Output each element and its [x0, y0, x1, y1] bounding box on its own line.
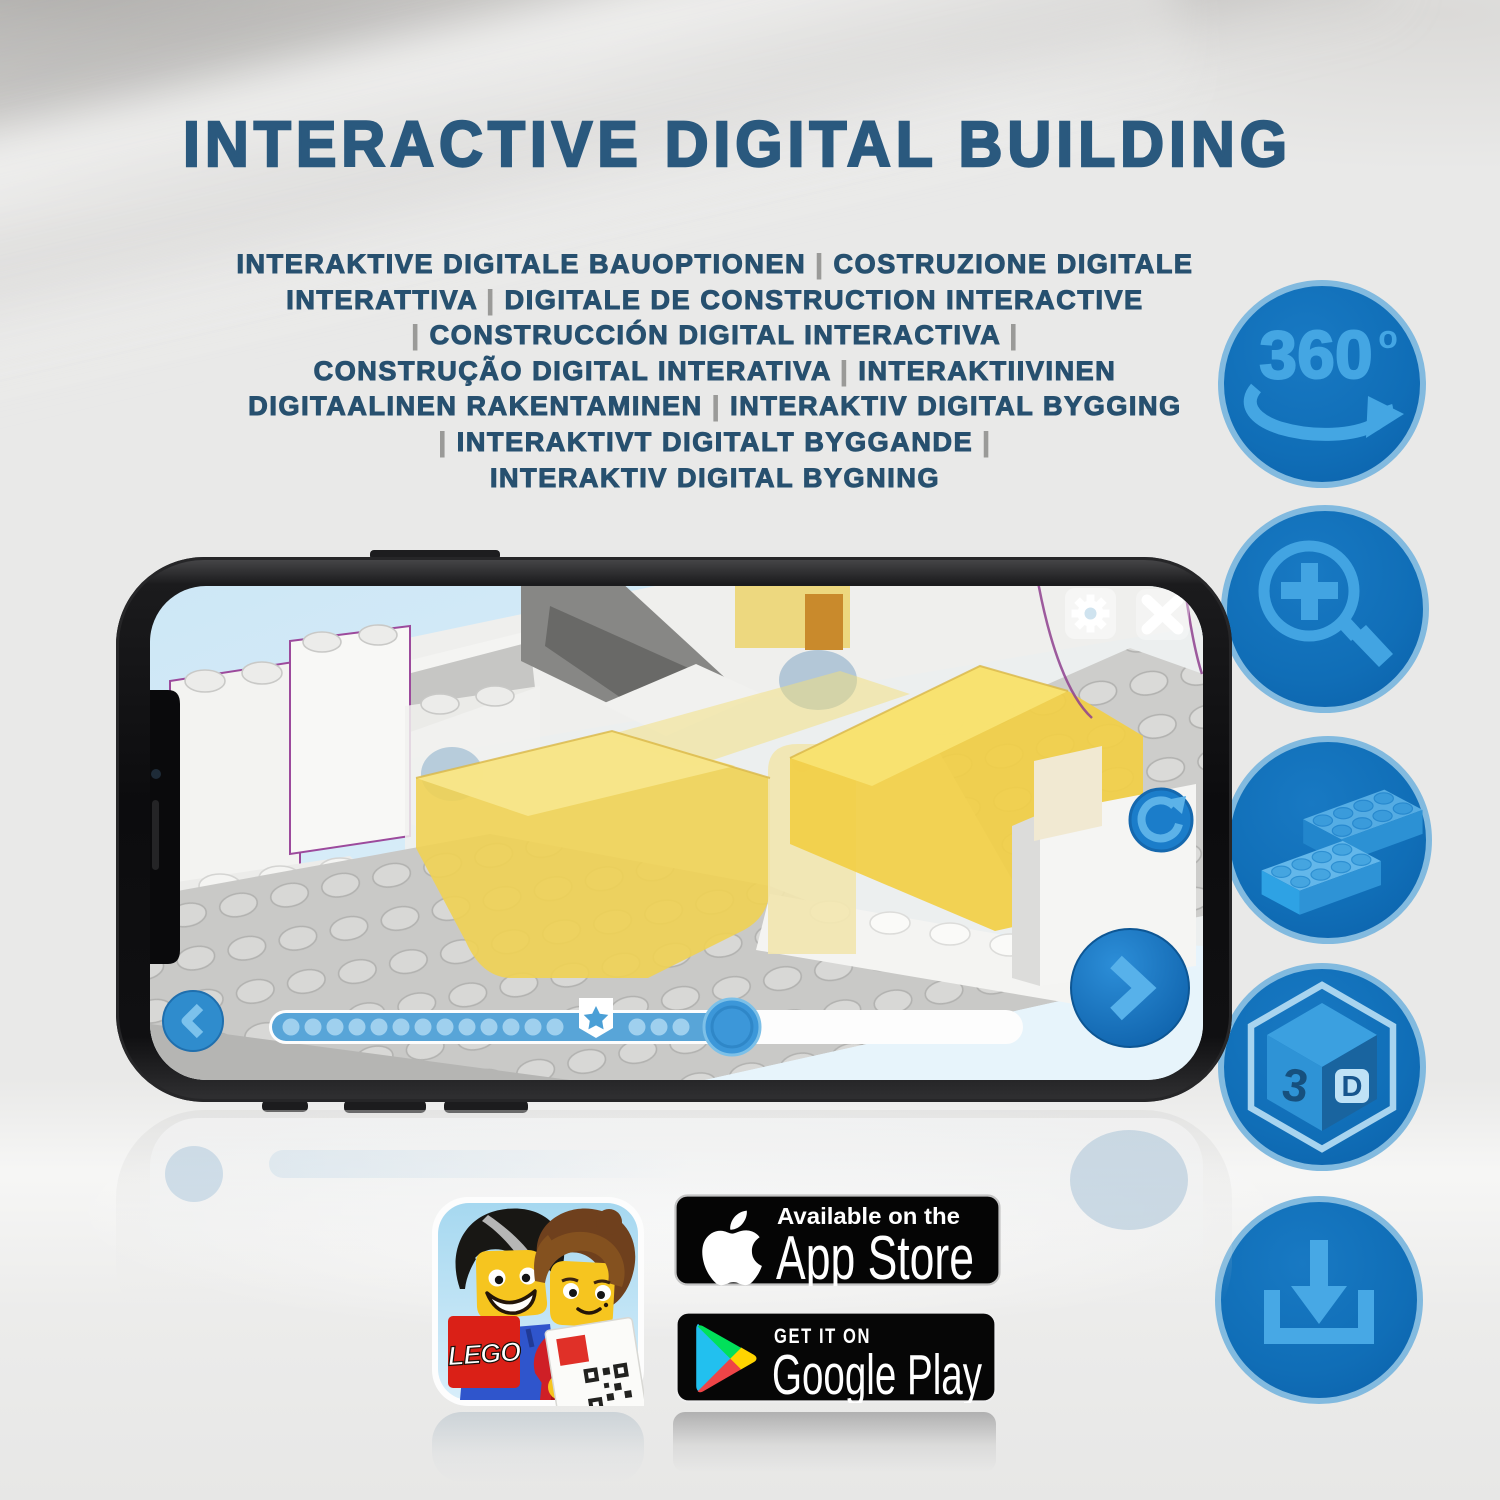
svg-text:o: o — [1378, 319, 1398, 355]
svg-text:D: D — [1342, 1071, 1363, 1103]
svg-text:App Store: App Store — [776, 1224, 974, 1286]
svg-text:LEGO: LEGO — [447, 1336, 522, 1371]
svg-text:Google Play: Google Play — [772, 1343, 982, 1403]
svg-text:360: 360 — [1259, 317, 1372, 393]
